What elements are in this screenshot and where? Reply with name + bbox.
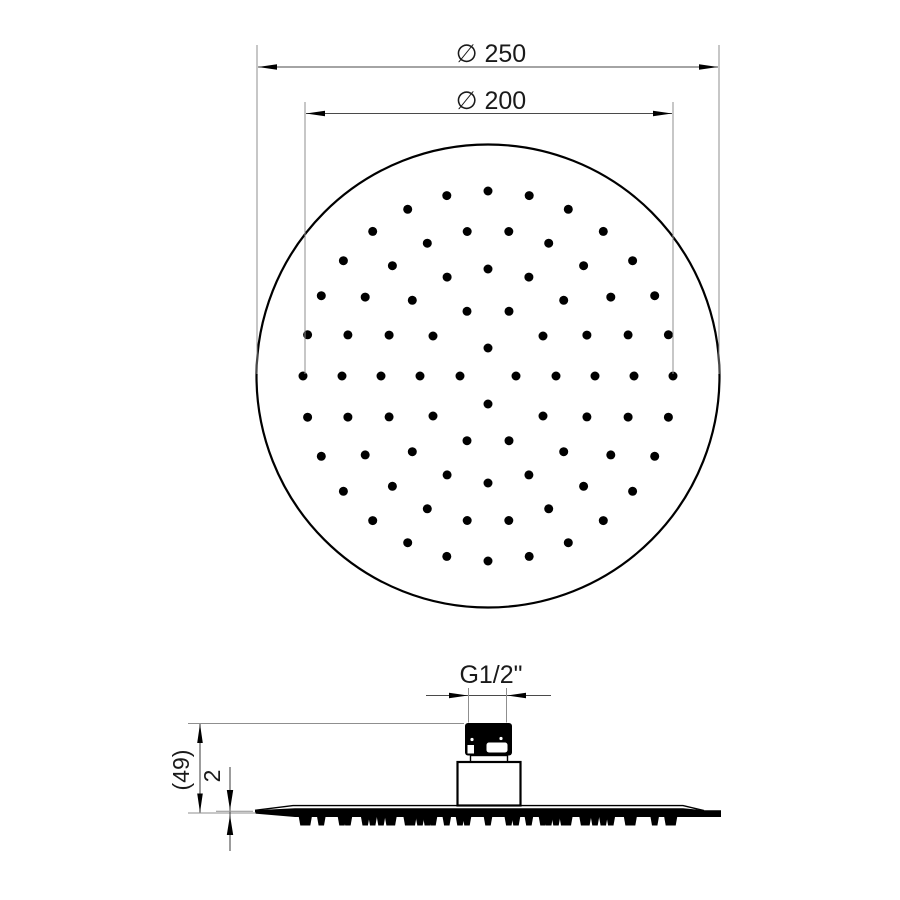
nozzle-dot (463, 227, 472, 236)
nozzle-dot (339, 256, 348, 265)
nozzle-tooth (591, 817, 600, 826)
nozzle-dot (484, 265, 493, 274)
nozzle-dot (504, 516, 513, 525)
nozzle-tooth (317, 817, 326, 826)
nozzle-dot (524, 273, 533, 282)
nozzle-dot (343, 330, 352, 339)
nozzle-dot (512, 372, 521, 381)
nozzle-tooth (512, 817, 521, 826)
nozzle-dot (442, 552, 451, 561)
side-view: G1/2" (168, 661, 721, 851)
nozzle-dot (408, 296, 417, 305)
inner-diameter-label: ∅ 200 (456, 87, 526, 115)
nozzle-dot (505, 307, 514, 316)
nozzle-dot (559, 296, 568, 305)
nozzle-tooth (607, 817, 616, 826)
top-view: ∅ 250 ∅ 200 (257, 40, 720, 608)
thread-fitting (465, 723, 512, 762)
nozzle-dot (539, 412, 548, 421)
nozzle-tooth (361, 817, 370, 826)
dim-thread: G1/2" (426, 661, 551, 723)
nozzle-dot (559, 447, 568, 456)
outer-diameter-label: ∅ 250 (456, 40, 526, 68)
nozzle-dot (429, 412, 438, 421)
nozzle-dot (403, 538, 412, 547)
nozzle-dot (484, 400, 493, 409)
nozzle-dot (524, 470, 533, 479)
nozzle-dot (650, 291, 659, 300)
nozzle-dot (544, 239, 553, 248)
nozzle-dot (579, 261, 588, 270)
arrowhead-upper (227, 790, 233, 810)
nozzle-dot (423, 239, 432, 248)
nozzle-dot (599, 516, 608, 525)
nozzle-dot (388, 261, 397, 270)
nozzle-dot (591, 372, 600, 381)
nozzle-dot (664, 330, 673, 339)
drawing-canvas: ∅ 250 ∅ 200 G1/2" (0, 0, 900, 900)
nozzle-dot (484, 187, 493, 196)
thread-glint-right (499, 737, 502, 740)
nozzle-dot (416, 372, 425, 381)
thread-glint-left (470, 738, 473, 741)
arrowhead-left (449, 693, 468, 699)
nozzle-dot (338, 372, 347, 381)
plate-body (255, 808, 721, 817)
nozzle-dot (388, 482, 397, 491)
nozzle-dot (343, 413, 352, 422)
arrowhead-right (507, 693, 526, 699)
hex-flat-highlight-small (468, 745, 475, 754)
nozzle-tooth (484, 817, 493, 826)
nozzle-tooth (505, 817, 514, 826)
arrowhead-left (258, 64, 277, 70)
nozzle-dot (368, 227, 377, 236)
plate-profile (255, 806, 721, 826)
nozzle-dot (442, 191, 451, 200)
nozzle-dot (303, 413, 312, 422)
nozzle-dot (579, 482, 588, 491)
nozzle-dot (361, 450, 370, 459)
nozzle-dot (339, 487, 348, 496)
hex-flat-highlight (487, 743, 508, 753)
nozzle-dot (484, 557, 493, 566)
nozzle-dot (317, 452, 326, 461)
thickness-label: 2 (199, 770, 225, 783)
nozzle-tooth (368, 817, 377, 826)
nozzle-dot (624, 413, 633, 422)
nozzle-dot (299, 372, 308, 381)
nozzle-dot (303, 330, 312, 339)
nozzle-dot (408, 447, 417, 456)
nozzle-dot (317, 291, 326, 300)
nozzle-dot (628, 256, 637, 265)
nozzle-dot (429, 332, 438, 341)
nozzle-dot (624, 330, 633, 339)
nozzle-dot (463, 516, 472, 525)
height-label: (49) (168, 750, 194, 791)
nozzle-dot (403, 205, 412, 214)
nozzle-dot (377, 372, 386, 381)
shower-face-outline (257, 145, 720, 608)
nozzle-dot (443, 470, 452, 479)
nozzle-teeth (299, 817, 678, 826)
nozzle-dots (299, 187, 678, 566)
dim-thickness: 2 (199, 767, 253, 851)
nozzle-dot (385, 412, 394, 421)
connector-cylinder (458, 762, 521, 806)
nozzle-dot (505, 436, 514, 445)
nozzle-dot (582, 331, 591, 340)
nozzle-dot (484, 344, 493, 353)
nozzle-dot (630, 372, 639, 381)
nozzle-tooth (463, 817, 472, 826)
nozzle-dot (599, 227, 608, 236)
thread-label: G1/2" (459, 661, 522, 689)
nozzle-dot (544, 504, 553, 513)
nozzle-tooth (443, 817, 452, 826)
nozzle-dot (628, 487, 637, 496)
nozzle-dot (664, 413, 673, 422)
nozzle-dot (484, 479, 493, 488)
dim-inner-diameter: ∅ 200 (305, 87, 673, 374)
arrowhead-bottom (197, 794, 203, 813)
nozzle-tooth (599, 817, 608, 826)
nozzle-dot (423, 504, 432, 513)
nozzle-dot (385, 331, 394, 340)
nozzle-dot (606, 450, 615, 459)
nozzle-dot (539, 332, 548, 341)
dim-height: (49) (168, 724, 464, 814)
nozzle-dot (361, 293, 370, 302)
nozzle-tooth (416, 817, 425, 826)
nozzle-dot (582, 412, 591, 421)
arrowhead-top (197, 724, 203, 743)
nozzle-dot (552, 372, 561, 381)
arrowhead-left (306, 111, 325, 117)
nozzle-dot (650, 452, 659, 461)
nozzle-dot (463, 307, 472, 316)
nozzle-dot (525, 552, 534, 561)
arrowhead-lower (227, 815, 233, 835)
nozzle-tooth (525, 817, 534, 826)
nozzle-dot (456, 372, 465, 381)
nozzle-dot (564, 205, 573, 214)
nozzle-dot (525, 191, 534, 200)
nozzle-tooth (552, 817, 561, 826)
technical-drawing: ∅ 250 ∅ 200 G1/2" (0, 0, 900, 900)
nozzle-dot (564, 538, 573, 547)
nozzle-tooth (377, 817, 386, 826)
nozzle-dot (606, 293, 615, 302)
arrowhead-right (653, 111, 672, 117)
arrowhead-right (699, 64, 718, 70)
nozzle-dot (504, 227, 513, 236)
nozzle-dot (463, 436, 472, 445)
nozzle-dot (443, 273, 452, 282)
nozzle-dot (368, 516, 377, 525)
nozzle-tooth (650, 817, 659, 826)
